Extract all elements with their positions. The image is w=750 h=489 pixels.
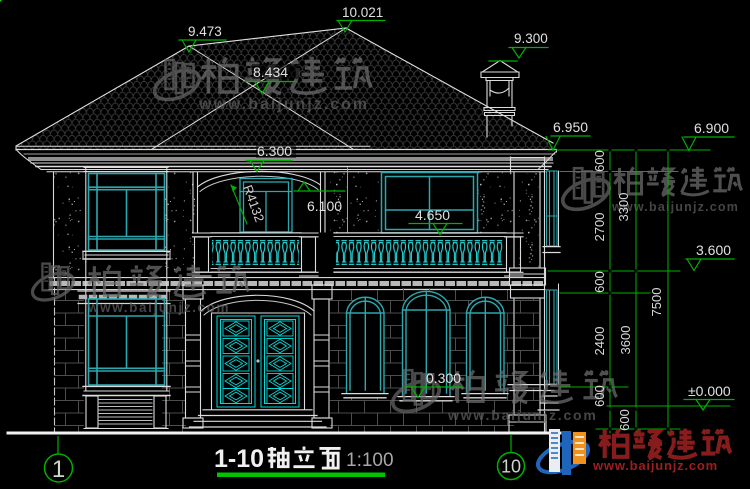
svg-text:3.600: 3.600 bbox=[696, 242, 731, 258]
svg-text:1-10: 1-10 bbox=[214, 445, 264, 473]
svg-text:www.baijunjz.com: www.baijunjz.com bbox=[447, 407, 598, 423]
svg-text:www.baijunjz.com: www.baijunjz.com bbox=[87, 300, 230, 315]
svg-text:0.300: 0.300 bbox=[426, 370, 461, 386]
svg-text:600: 600 bbox=[592, 271, 607, 293]
svg-text:9.300: 9.300 bbox=[514, 31, 548, 46]
svg-text:2700: 2700 bbox=[592, 213, 607, 242]
svg-text:600: 600 bbox=[592, 150, 607, 172]
svg-text:www.baijunjz.com: www.baijunjz.com bbox=[592, 458, 718, 473]
svg-text:6.300: 6.300 bbox=[257, 143, 292, 159]
svg-text:6.900: 6.900 bbox=[694, 120, 729, 136]
svg-text:7500: 7500 bbox=[649, 288, 664, 317]
svg-text:8.434: 8.434 bbox=[253, 64, 288, 80]
svg-text:1:100: 1:100 bbox=[346, 450, 394, 471]
svg-text:10.021: 10.021 bbox=[342, 5, 383, 20]
svg-text:±0.000: ±0.000 bbox=[688, 383, 731, 399]
svg-text:6.950: 6.950 bbox=[553, 119, 588, 135]
svg-text:6.100: 6.100 bbox=[307, 198, 342, 214]
svg-text:600: 600 bbox=[592, 385, 607, 407]
svg-text:4.650: 4.650 bbox=[415, 207, 450, 223]
svg-text:3600: 3600 bbox=[618, 326, 633, 355]
svg-text:1: 1 bbox=[52, 456, 65, 483]
svg-text:9.473: 9.473 bbox=[188, 24, 222, 39]
svg-text:600: 600 bbox=[617, 409, 632, 431]
svg-text:10: 10 bbox=[501, 457, 521, 477]
svg-text:3300: 3300 bbox=[616, 193, 631, 222]
svg-text:2400: 2400 bbox=[592, 327, 607, 356]
svg-text:www.baijunjz.com: www.baijunjz.com bbox=[198, 96, 369, 113]
